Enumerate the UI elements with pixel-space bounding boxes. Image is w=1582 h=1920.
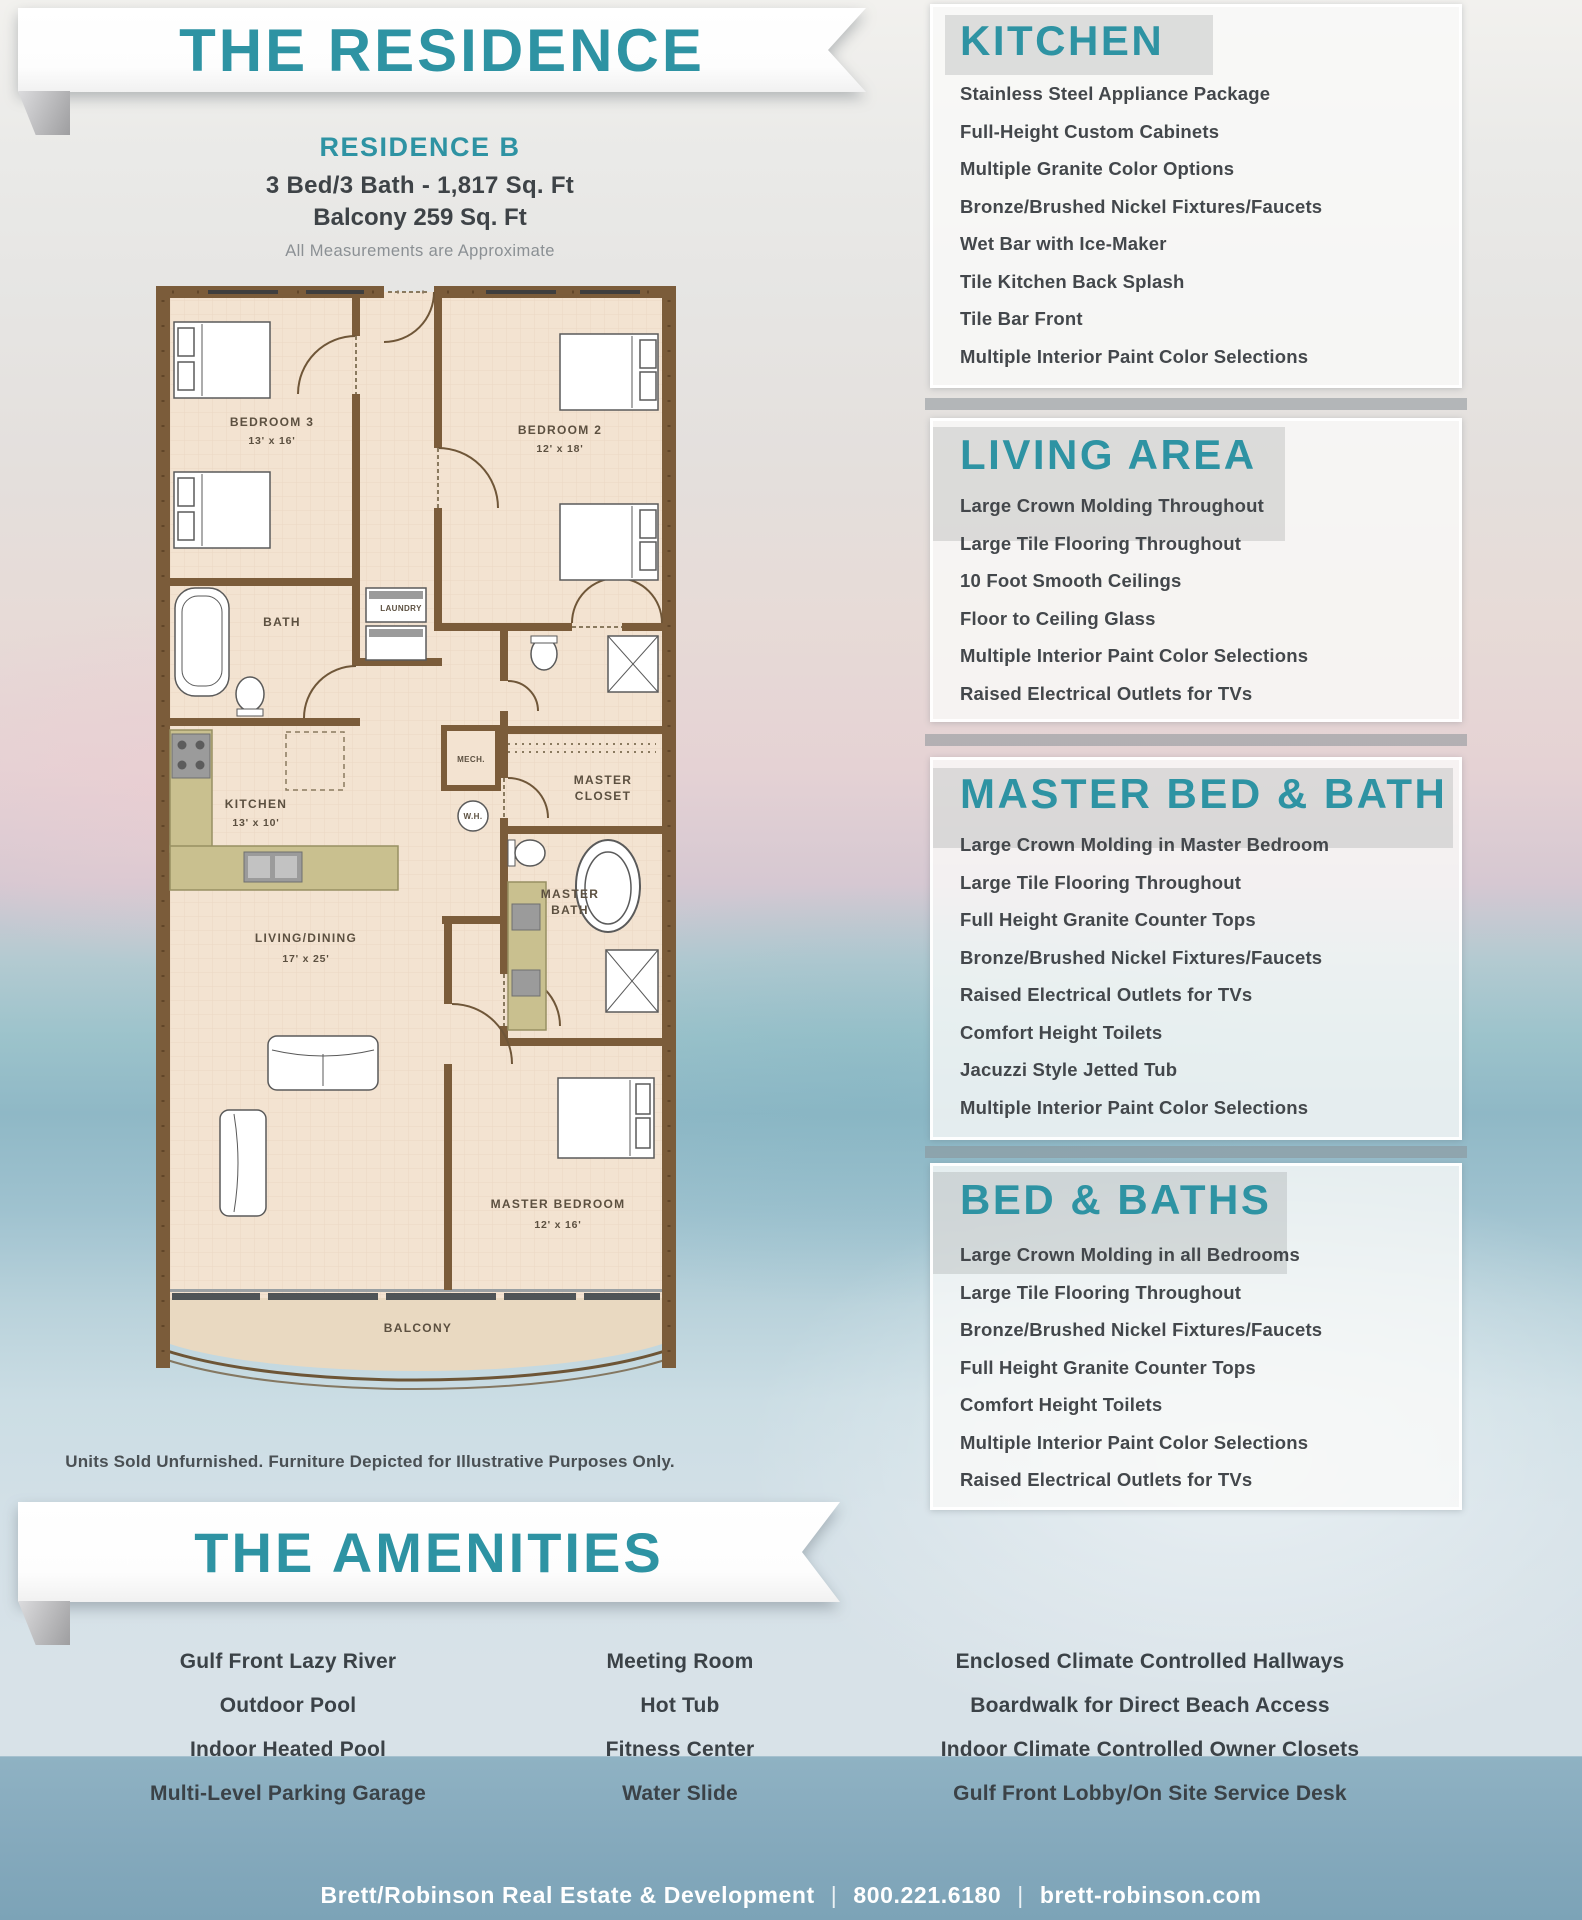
amenities-column-2: Meeting RoomHot TubFitness CenterWater S…	[470, 1648, 890, 1808]
feature-item: 10 Foot Smooth Ceilings	[960, 562, 1451, 600]
amenities-title: THE AMENITIES	[194, 1520, 663, 1585]
amenity-item: Gulf Front Lobby/On Site Service Desk	[880, 1780, 1420, 1808]
feature-item: Comfort Height Toilets	[960, 1386, 1451, 1424]
room-dims-living: 17' x 25'	[282, 953, 329, 965]
feature-item: Large Tile Flooring Throughout	[960, 864, 1451, 902]
panel-title-kitchen: KITCHEN	[960, 17, 1164, 65]
amenity-item: Outdoor Pool	[68, 1692, 508, 1720]
feature-list-living-area: Large Crown Molding ThroughoutLarge Tile…	[960, 487, 1451, 712]
residence-specs: 3 Bed/3 Bath - 1,817 Sq. Ft	[120, 172, 720, 200]
amenity-item: Water Slide	[470, 1780, 890, 1808]
amenities-column-1: Gulf Front Lazy RiverOutdoor PoolIndoor …	[68, 1648, 508, 1808]
feature-item: Large Tile Flooring Throughout	[960, 525, 1451, 563]
room-label-master-closet-2: CLOSET	[575, 789, 631, 803]
feature-item: Multiple Interior Paint Color Selections	[960, 637, 1451, 675]
feature-list-bed-baths: Large Crown Molding in all BedroomsLarge…	[960, 1236, 1451, 1499]
ribbon-fold	[18, 91, 70, 135]
feature-item: Floor to Ceiling Glass	[960, 600, 1451, 638]
feature-item: Large Tile Flooring Throughout	[960, 1274, 1451, 1312]
footer-website: brett-robinson.com	[1040, 1882, 1262, 1908]
panel-title-bed-baths: BED & BATHS	[960, 1176, 1271, 1224]
panel-living-area: LIVING AREA Large Crown Molding Througho…	[930, 418, 1462, 722]
amenities-column-3: Enclosed Climate Controlled HallwaysBoar…	[880, 1648, 1420, 1808]
amenity-item: Boardwalk for Direct Beach Access	[880, 1692, 1420, 1720]
feature-item: Raised Electrical Outlets for TVs	[960, 976, 1451, 1014]
amenity-item: Meeting Room	[470, 1648, 890, 1676]
feature-item: Wet Bar with Ice-Maker	[960, 225, 1451, 263]
panel-master-bed-bath: MASTER BED & BATH Large Crown Molding in…	[930, 757, 1462, 1140]
room-label-bath: BATH	[263, 615, 301, 629]
panel-divider	[925, 398, 1467, 410]
room-label-bedroom3: BEDROOM 3	[230, 415, 314, 429]
feature-item: Jacuzzi Style Jetted Tub	[960, 1051, 1451, 1089]
room-label-master-closet-1: MASTER	[574, 773, 632, 787]
room-label-master-bath-2: BATH	[551, 903, 589, 917]
room-label-balcony: BALCONY	[384, 1321, 452, 1335]
feature-item: Multiple Interior Paint Color Selections	[960, 1089, 1451, 1127]
room-label-wh: W.H.	[464, 812, 483, 821]
feature-item: Multiple Granite Color Options	[960, 150, 1451, 188]
amenity-item: Fitness Center	[470, 1736, 890, 1764]
feature-item: Raised Electrical Outlets for TVs	[960, 1461, 1451, 1499]
feature-item: Multiple Interior Paint Color Selections	[960, 1424, 1451, 1462]
feature-item: Full-Height Custom Cabinets	[960, 113, 1451, 151]
room-label-master-bedroom: MASTER BEDROOM	[491, 1197, 626, 1211]
floor-plan-svg: BEDROOM 3 13' x 16' BEDROOM 2 12' x 18' …	[156, 286, 676, 1404]
footer-separator: |	[1017, 1882, 1024, 1908]
feature-item: Comfort Height Toilets	[960, 1014, 1451, 1052]
feature-list-master-bed-bath: Large Crown Molding in Master BedroomLar…	[960, 826, 1451, 1126]
room-label-master-bath-1: MASTER	[541, 887, 599, 901]
panel-divider	[925, 1146, 1467, 1158]
feature-list-kitchen: Stainless Steel Appliance PackageFull-He…	[960, 75, 1451, 375]
amenities-banner: THE AMENITIES	[18, 1502, 840, 1602]
amenity-item: Multi-Level Parking Garage	[68, 1780, 508, 1808]
room-label-living: LIVING/DINING	[255, 931, 357, 945]
ribbon-fold	[18, 1601, 70, 1645]
footer-separator: |	[831, 1882, 838, 1908]
amenity-item: Indoor Heated Pool	[68, 1736, 508, 1764]
footer-company: Brett/Robinson Real Estate & Development	[320, 1882, 814, 1908]
feature-item: Multiple Interior Paint Color Selections	[960, 338, 1451, 376]
room-dims-kitchen: 13' x 10'	[232, 817, 279, 829]
residence-name: RESIDENCE B	[120, 132, 720, 163]
feature-item: Tile Bar Front	[960, 300, 1451, 338]
panel-kitchen: KITCHEN Stainless Steel Appliance Packag…	[930, 4, 1462, 388]
feature-item: Full Height Granite Counter Tops	[960, 901, 1451, 939]
amenity-item: Enclosed Climate Controlled Hallways	[880, 1648, 1420, 1676]
amenity-item: Indoor Climate Controlled Owner Closets	[880, 1736, 1420, 1764]
panel-bed-baths: BED & BATHS Large Crown Molding in all B…	[930, 1163, 1462, 1510]
room-dims-bedroom2: 12' x 18'	[536, 443, 583, 455]
residence-balcony-size: Balcony 259 Sq. Ft	[120, 204, 720, 232]
room-label-bedroom2: BEDROOM 2	[518, 423, 602, 437]
feature-item: Large Crown Molding in Master Bedroom	[960, 826, 1451, 864]
amenity-item: Hot Tub	[470, 1692, 890, 1720]
measurements-note: All Measurements are Approximate	[120, 242, 720, 261]
footer: Brett/Robinson Real Estate & Development…	[0, 1882, 1582, 1909]
feature-item: Bronze/Brushed Nickel Fixtures/Faucets	[960, 939, 1451, 977]
room-label-mech: MECH.	[457, 755, 485, 764]
feature-item: Tile Kitchen Back Splash	[960, 263, 1451, 301]
feature-item: Raised Electrical Outlets for TVs	[960, 675, 1451, 713]
residence-banner-ribbon: THE RESIDENCE	[18, 8, 866, 92]
panel-title-living-area: LIVING AREA	[960, 431, 1257, 479]
footer-phone: 800.221.6180	[853, 1882, 1001, 1908]
feature-item: Large Crown Molding Throughout	[960, 487, 1451, 525]
furniture-disclaimer: Units Sold Unfurnished. Furniture Depict…	[60, 1452, 680, 1472]
amenities-banner-ribbon: THE AMENITIES	[18, 1502, 840, 1602]
room-label-kitchen: KITCHEN	[225, 797, 287, 811]
feature-item: Stainless Steel Appliance Package	[960, 75, 1451, 113]
feature-item: Bronze/Brushed Nickel Fixtures/Faucets	[960, 1311, 1451, 1349]
residence-banner: THE RESIDENCE	[18, 8, 866, 92]
panel-title-master-bed-bath: MASTER BED & BATH	[960, 770, 1447, 818]
amenity-item: Gulf Front Lazy River	[68, 1648, 508, 1676]
page-title: THE RESIDENCE	[179, 16, 705, 85]
floor-plan: BEDROOM 3 13' x 16' BEDROOM 2 12' x 18' …	[156, 286, 676, 1404]
residence-info: RESIDENCE B 3 Bed/3 Bath - 1,817 Sq. Ft …	[120, 132, 720, 261]
room-dims-bedroom3: 13' x 16'	[248, 435, 295, 447]
feature-item: Full Height Granite Counter Tops	[960, 1349, 1451, 1387]
feature-item: Large Crown Molding in all Bedrooms	[960, 1236, 1451, 1274]
feature-item: Bronze/Brushed Nickel Fixtures/Faucets	[960, 188, 1451, 226]
room-dims-master-bedroom: 12' x 16'	[534, 1219, 581, 1231]
room-label-laundry: LAUNDRY	[380, 604, 422, 613]
panel-divider	[925, 734, 1467, 746]
